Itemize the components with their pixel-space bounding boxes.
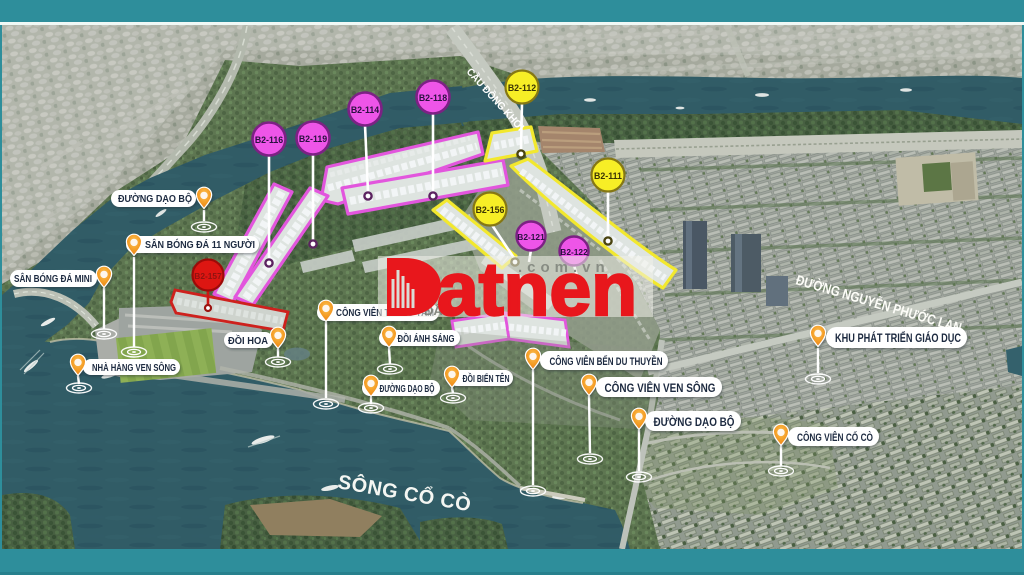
svg-text:B2-112: B2-112 [508,83,536,93]
svg-text:B2-119: B2-119 [299,134,327,144]
svg-text:ĐƯỜNG DẠO BỘ: ĐƯỜNG DẠO BỘ [118,192,192,205]
svg-text:ĐƯỜNG DẠO BỘ: ĐƯỜNG DẠO BỘ [654,414,735,429]
svg-text:ĐƯỜNG DẠO BỘ: ĐƯỜNG DẠO BỘ [380,382,435,395]
svg-text:B2-114: B2-114 [351,105,379,115]
svg-text:B2-111: B2-111 [594,171,622,181]
svg-text:B2-156: B2-156 [476,205,505,215]
svg-text:SÂN BÓNG ĐÁ 11 NGƯỜI: SÂN BÓNG ĐÁ 11 NGƯỜI [145,238,255,251]
svg-text:ĐỒI BIỂN TÊN: ĐỒI BIỂN TÊN [463,372,510,385]
svg-text:B2-157: B2-157 [194,271,222,281]
svg-text:B2-118: B2-118 [419,93,447,103]
svg-text:CÔNG VIÊN VEN SÔNG: CÔNG VIÊN VEN SÔNG [605,380,716,395]
svg-text:ĐỒI HOA: ĐỒI HOA [228,334,268,347]
svg-text:SÂN BÓNG ĐÁ MINI: SÂN BÓNG ĐÁ MINI [14,272,92,285]
svg-text:B2-116: B2-116 [255,135,283,145]
svg-text:ĐỒI ÁNH SÁNG: ĐỒI ÁNH SÁNG [398,332,455,345]
svg-text:CÔNG VIÊN BẾN DU THUYỀN: CÔNG VIÊN BẾN DU THUYỀN [550,355,663,368]
svg-text:NHÀ HÀNG VEN SÔNG: NHÀ HÀNG VEN SÔNG [92,361,176,374]
svg-text:KHU PHÁT TRIỂN GIÁO DỤC: KHU PHÁT TRIỂN GIÁO DỤC [835,330,961,345]
svg-text:B2-121: B2-121 [517,232,545,242]
svg-text:CÔNG VIÊN CỔ CÒ: CÔNG VIÊN CỔ CÒ [797,431,873,444]
svg-text:atnen: atnen [437,247,637,331]
